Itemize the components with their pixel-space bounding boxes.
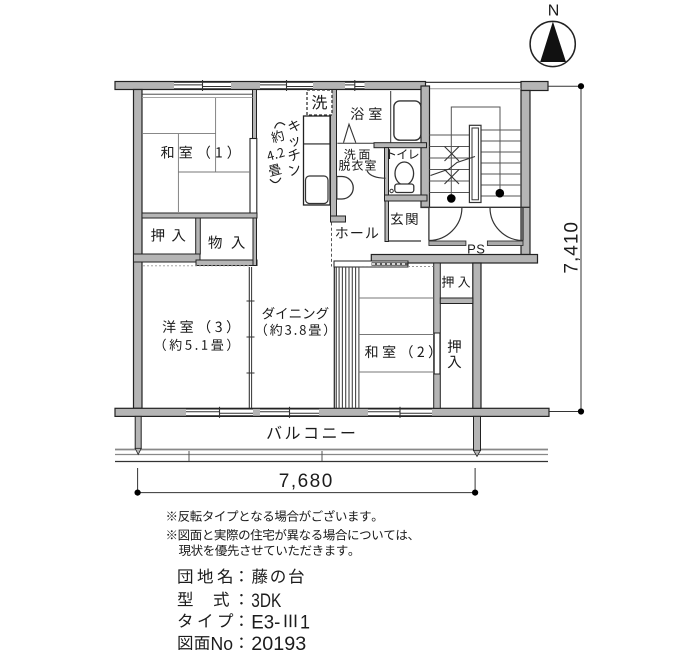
svg-text:E3-: E3-	[251, 611, 280, 633]
svg-text:PS: PS	[467, 241, 485, 256]
svg-text:7,680: 7,680	[279, 471, 334, 492]
svg-text:1: 1	[300, 611, 310, 633]
svg-text:N: N	[548, 3, 560, 20]
svg-text:7,410: 7,410	[562, 221, 583, 274]
svg-text:3DK: 3DK	[251, 590, 281, 612]
svg-text:No: No	[211, 634, 234, 650]
svg-text:20193: 20193	[251, 633, 306, 650]
